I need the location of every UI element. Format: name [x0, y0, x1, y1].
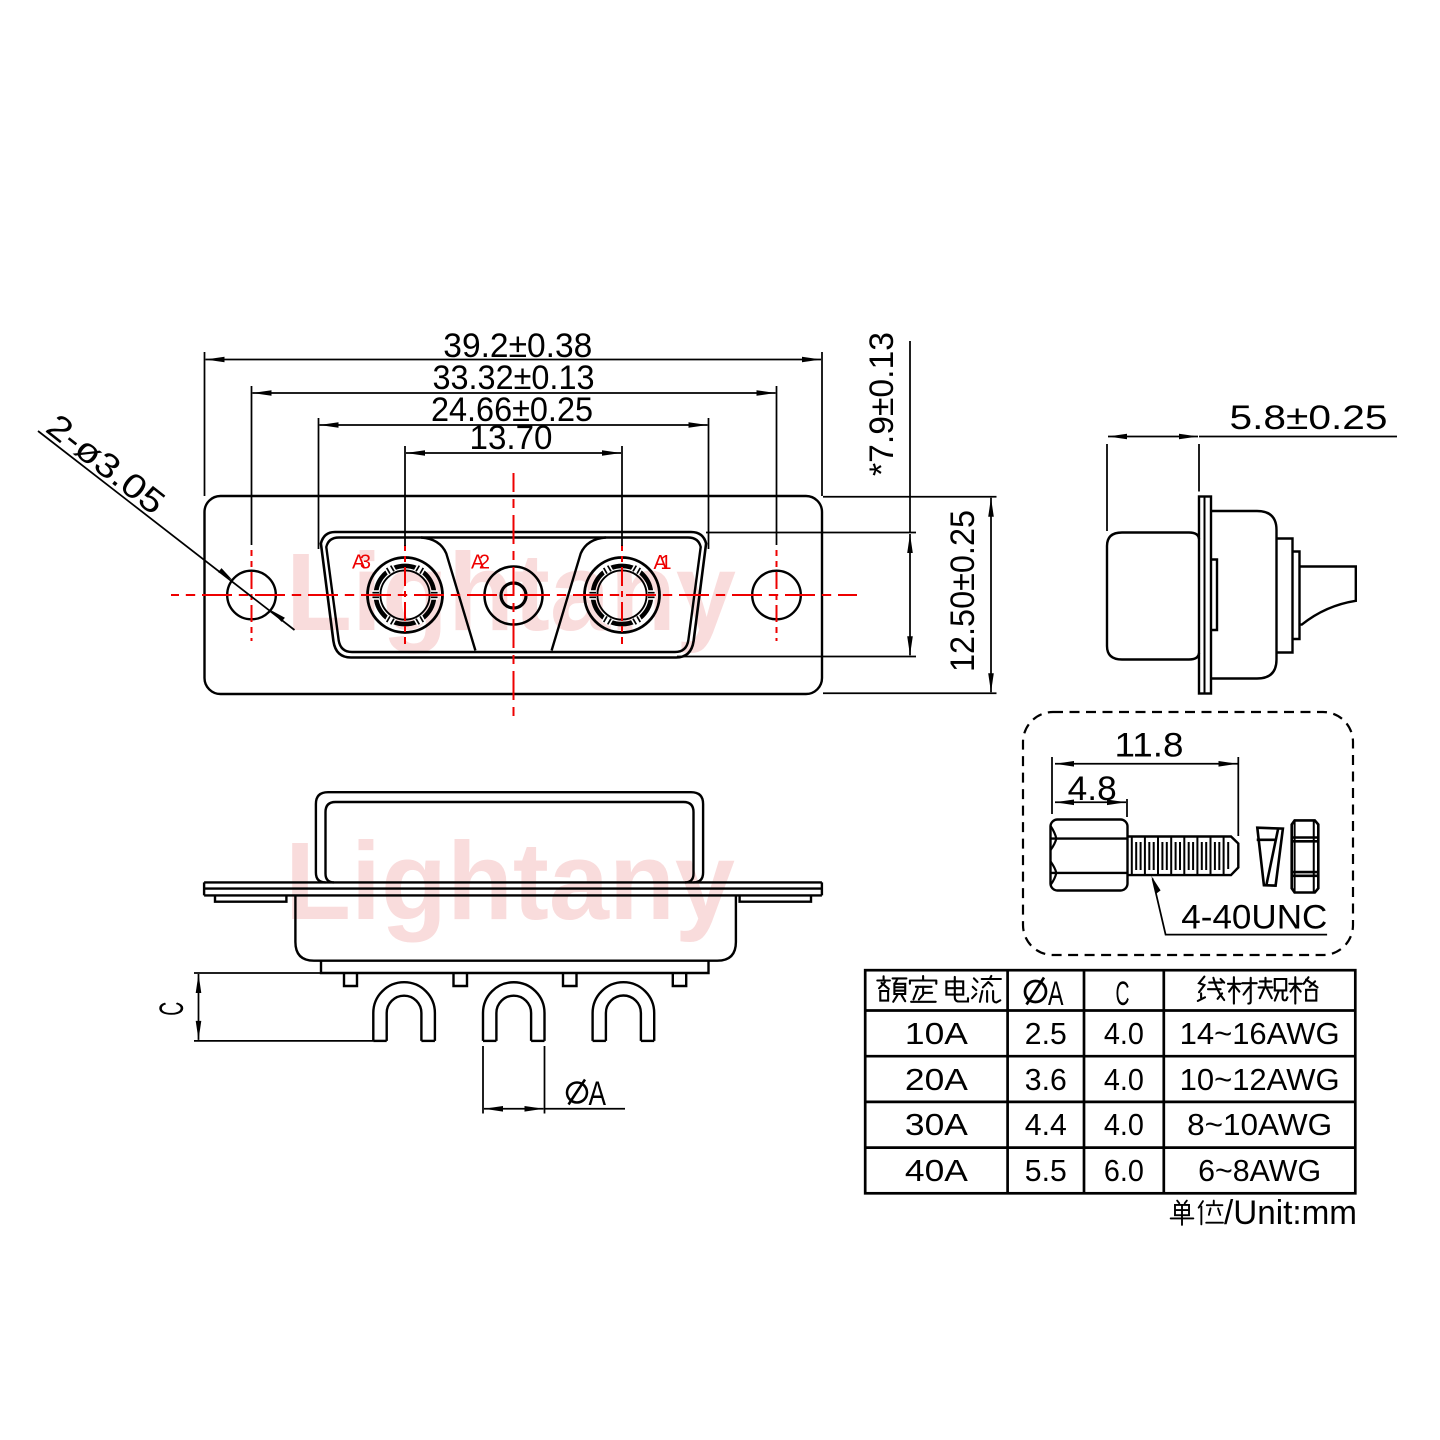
svg-text:20A: 20A — [905, 1062, 968, 1097]
svg-text:*7.9±0.13: *7.9±0.13 — [863, 332, 901, 476]
svg-text:4-40UNC: 4-40UNC — [1181, 898, 1327, 936]
svg-text:4.0: 4.0 — [1104, 1016, 1144, 1051]
svg-text:5.8±0.25: 5.8±0.25 — [1230, 399, 1388, 437]
svg-text:A1: A1 — [654, 552, 672, 574]
svg-text:Lightany: Lightany — [286, 531, 736, 654]
svg-text:30A: 30A — [905, 1107, 968, 1142]
svg-text:2.5: 2.5 — [1025, 1016, 1067, 1051]
svg-text:40A: 40A — [905, 1153, 968, 1188]
svg-text:/Unit:mm: /Unit:mm — [1224, 1194, 1357, 1232]
svg-text:12.50±0.25: 12.50±0.25 — [944, 510, 982, 672]
svg-text:A: A — [589, 1075, 607, 1113]
svg-text:11.8: 11.8 — [1115, 727, 1184, 765]
svg-text:A: A — [1048, 975, 1064, 1013]
svg-text:13.70: 13.70 — [470, 419, 553, 457]
svg-text:3.6: 3.6 — [1025, 1062, 1067, 1097]
svg-text:10~12AWG: 10~12AWG — [1180, 1062, 1340, 1097]
svg-text:4.0: 4.0 — [1104, 1062, 1144, 1097]
svg-text:5.5: 5.5 — [1025, 1153, 1067, 1188]
svg-text:6~8AWG: 6~8AWG — [1198, 1153, 1321, 1188]
svg-text:C: C — [1116, 975, 1130, 1013]
svg-text:4.4: 4.4 — [1025, 1107, 1067, 1142]
svg-text:6.0: 6.0 — [1104, 1153, 1144, 1188]
svg-text:4.0: 4.0 — [1104, 1107, 1144, 1142]
svg-text:8~10AWG: 8~10AWG — [1187, 1107, 1332, 1142]
svg-text:C: C — [153, 1002, 191, 1016]
svg-text:A2: A2 — [471, 552, 490, 574]
svg-text:10A: 10A — [905, 1016, 968, 1051]
svg-text:A3: A3 — [352, 552, 371, 574]
svg-text:4.8: 4.8 — [1068, 770, 1117, 808]
svg-text:14~16AWG: 14~16AWG — [1180, 1016, 1340, 1051]
